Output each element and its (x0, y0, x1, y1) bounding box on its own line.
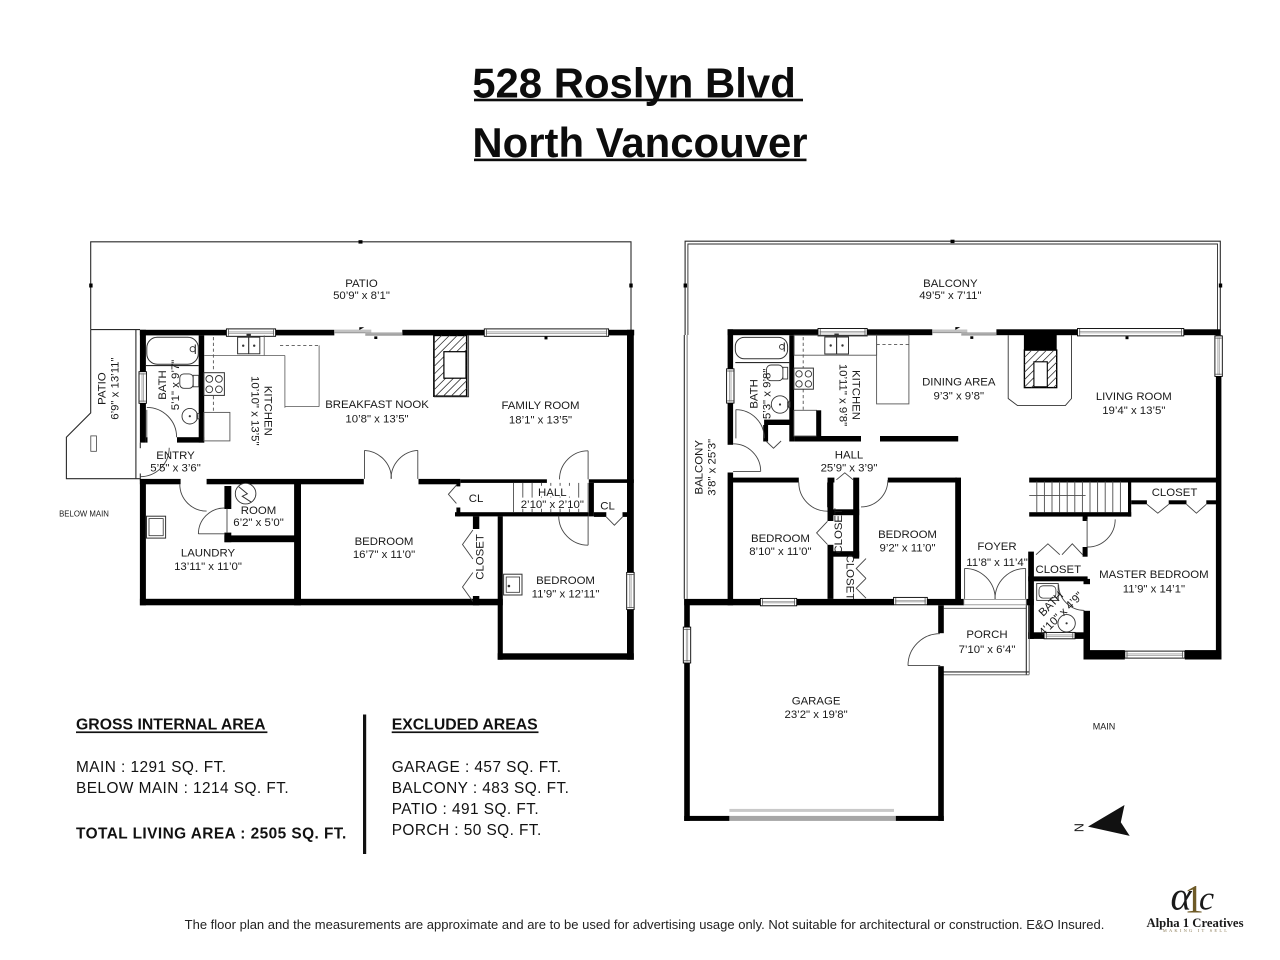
svg-text:18’1" x 13’5": 18’1" x 13’5" (509, 414, 572, 426)
svg-text:11’9" x 12’11": 11’9" x 12’11" (532, 588, 600, 600)
svg-text:5’5" x 3’6": 5’5" x 3’6" (150, 463, 201, 475)
svg-text:GARAGE : 457 SQ. FT.: GARAGE : 457 SQ. FT. (392, 759, 562, 776)
svg-text:EXCLUDED AREAS: EXCLUDED AREAS (392, 716, 538, 733)
svg-text:TOTAL LIVING AREA : 2505 SQ. F: TOTAL LIVING AREA : 2505 SQ. FT. (76, 826, 347, 843)
svg-text:The floor plan and the measure: The floor plan and the measurements are … (185, 917, 1105, 932)
svg-text:6’9" x 13’11": 6’9" x 13’11" (110, 357, 122, 419)
svg-text:13’11" x 11’0": 13’11" x 11’0" (174, 561, 242, 573)
svg-text:5’1" x 9’7": 5’1" x 9’7" (170, 360, 182, 411)
svg-text:DINING AREA: DINING AREA (922, 377, 996, 389)
svg-text:PORCH: PORCH (966, 629, 1007, 641)
svg-text:BEDROOM: BEDROOM (878, 529, 937, 541)
svg-text:LIVING ROOM: LIVING ROOM (1096, 391, 1172, 403)
svg-text:10’10" x 13’5": 10’10" x 13’5" (249, 376, 261, 446)
svg-text:PATIO : 491 SQ. FT.: PATIO : 491 SQ. FT. (392, 801, 539, 818)
svg-text:HALL: HALL (835, 450, 864, 462)
svg-text:11’9" x 14’1": 11’9" x 14’1" (1123, 584, 1185, 596)
svg-text:11’8" x 11’4": 11’8" x 11’4" (966, 557, 1028, 569)
svg-text:BELOW MAIN: BELOW MAIN (59, 509, 109, 518)
svg-text:10’11" x 9’8": 10’11" x 9’8" (837, 364, 849, 426)
svg-text:BELOW MAIN : 1214 SQ. FT.: BELOW MAIN : 1214 SQ. FT. (76, 780, 289, 797)
svg-text:BATH: BATH (157, 370, 169, 400)
svg-text:19’4" x 13’5": 19’4" x 13’5" (1102, 405, 1165, 417)
svg-text:BEDROOM: BEDROOM (751, 533, 810, 545)
svg-text:BEDROOM: BEDROOM (536, 575, 595, 587)
svg-text:CL: CL (600, 501, 615, 513)
svg-text:GROSS INTERNAL AREA: GROSS INTERNAL AREA (76, 716, 266, 733)
svg-text:ROOM: ROOM (241, 505, 276, 517)
svg-text:ENTRY: ENTRY (156, 450, 195, 462)
svg-text:6’2" x 5’0": 6’2" x 5’0" (233, 517, 284, 529)
svg-text:HALL: HALL (538, 487, 567, 499)
svg-text:CLOSET: CLOSET (1152, 487, 1198, 499)
svg-text:9’3" x 9’8": 9’3" x 9’8" (934, 391, 985, 403)
svg-text:PATIO: PATIO (345, 278, 378, 290)
svg-text:25’9" x 3’9": 25’9" x 3’9" (821, 463, 878, 475)
svg-text:23’2" x 19’8": 23’2" x 19’8" (785, 709, 848, 721)
svg-text:N: N (1071, 823, 1085, 832)
svg-text:KITCHEN: KITCHEN (262, 386, 274, 436)
svg-text:9’2" x 11’0": 9’2" x 11’0" (879, 542, 935, 554)
svg-text:CLOSET: CLOSET (833, 508, 845, 554)
svg-text:CLOSET: CLOSET (1036, 564, 1082, 576)
svg-text:MAKING IT SELL: MAKING IT SELL (1163, 928, 1229, 933)
svg-text:2’10" x 2’10": 2’10" x 2’10" (521, 499, 584, 511)
svg-text:10’8" x 13’5": 10’8" x 13’5" (345, 413, 408, 425)
svg-text:BALCONY : 483 SQ. FT.: BALCONY : 483 SQ. FT. (392, 780, 570, 797)
svg-text:5’3" x 9’8": 5’3" x 9’8" (761, 369, 773, 420)
svg-text:BALCONY: BALCONY (693, 440, 705, 495)
svg-text:PATIO: PATIO (97, 372, 109, 405)
svg-text:FAMILY ROOM: FAMILY ROOM (501, 400, 579, 412)
svg-text:PORCH : 50 SQ. FT.: PORCH : 50 SQ. FT. (392, 822, 542, 839)
svg-text:50’9" x 8’1": 50’9" x 8’1" (333, 290, 390, 302)
svg-text:LAUNDRY: LAUNDRY (181, 548, 236, 560)
svg-text:KITCHEN: KITCHEN (850, 370, 862, 420)
svg-text:GARAGE: GARAGE (792, 695, 841, 707)
svg-text:BEDROOM: BEDROOM (355, 536, 414, 548)
svg-text:c: c (1199, 881, 1214, 918)
svg-text:BALCONY: BALCONY (923, 278, 978, 290)
svg-text:CLOSET: CLOSET (843, 555, 855, 601)
svg-text:7’10" x 6’4": 7’10" x 6’4" (959, 644, 1016, 656)
svg-text:MAIN: MAIN (1093, 722, 1116, 732)
svg-text:MAIN : 1291 SQ. FT.: MAIN : 1291 SQ. FT. (76, 759, 227, 776)
svg-text:CL: CL (469, 493, 484, 505)
svg-text:BREAKFAST NOOK: BREAKFAST NOOK (325, 399, 429, 411)
svg-text:MASTER BEDROOM: MASTER BEDROOM (1099, 569, 1209, 581)
svg-text:8’10" x 11’0": 8’10" x 11’0" (749, 546, 811, 558)
svg-text:16’7" x 11’0": 16’7" x 11’0" (353, 549, 415, 561)
svg-text:FOYER: FOYER (977, 541, 1016, 553)
svg-text:BATH: BATH (748, 379, 760, 409)
svg-text:3’8" x 25’3": 3’8" x 25’3" (706, 439, 718, 496)
svg-text:CLOSET: CLOSET (475, 534, 487, 580)
svg-text:49’5" x 7’11": 49’5" x 7’11" (919, 290, 981, 302)
